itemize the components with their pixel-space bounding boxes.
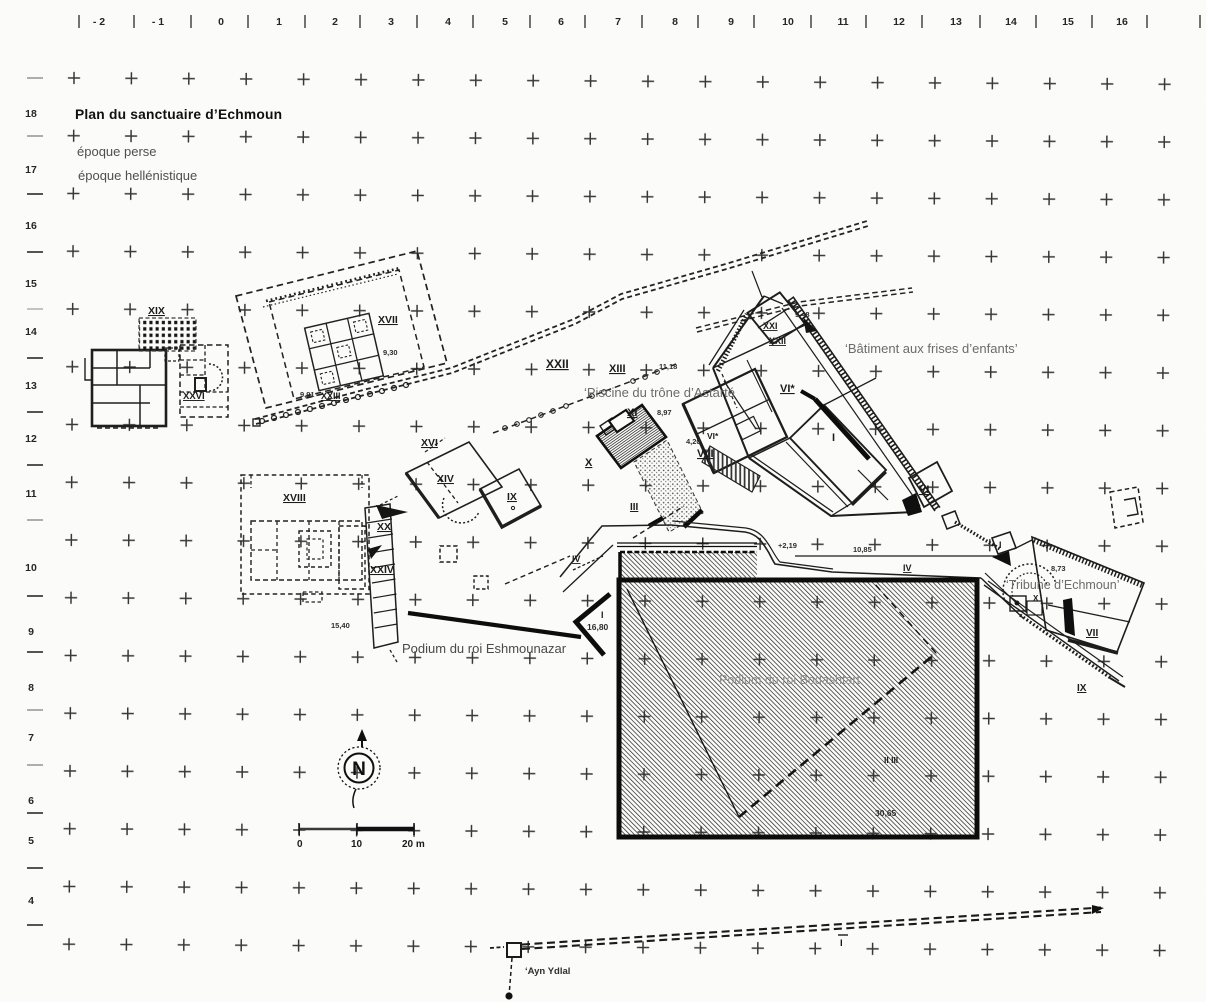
svg-text:15,40: 15,40 bbox=[331, 621, 350, 630]
svg-text:+2,19: +2,19 bbox=[778, 541, 797, 550]
svg-text:5: 5 bbox=[502, 16, 508, 28]
svg-text:Podium du roi Eshmounazar: Podium du roi Eshmounazar bbox=[402, 641, 567, 656]
svg-text:XXII: XXII bbox=[769, 336, 786, 346]
svg-text:16: 16 bbox=[1116, 16, 1128, 28]
svg-text:‘Bâtiment aux frises d’enfants: ‘Bâtiment aux frises d’enfants’ bbox=[845, 341, 1018, 356]
svg-text:VIII: VIII bbox=[697, 448, 714, 460]
svg-text:30,65: 30,65 bbox=[875, 808, 897, 818]
svg-text:XXII: XXII bbox=[546, 357, 569, 371]
svg-text:époque hellénistique: époque hellénistique bbox=[78, 168, 197, 183]
svg-text:XXVI: XXVI bbox=[183, 391, 205, 402]
svg-text:XVII: XVII bbox=[378, 314, 398, 326]
svg-text:13: 13 bbox=[950, 16, 962, 28]
svg-text:10: 10 bbox=[351, 839, 363, 850]
svg-text:17: 17 bbox=[25, 164, 37, 176]
svg-text:époque perse: époque perse bbox=[77, 144, 157, 159]
svg-text:8,97: 8,97 bbox=[657, 408, 672, 417]
svg-text:XXIV: XXIV bbox=[370, 564, 394, 576]
svg-text:18: 18 bbox=[25, 108, 37, 120]
svg-text:11,18: 11,18 bbox=[659, 362, 677, 371]
svg-text:‘Tribune d’Echmoun’: ‘Tribune d’Echmoun’ bbox=[1006, 578, 1119, 592]
svg-text:XX: XX bbox=[377, 521, 391, 533]
svg-text:11: 11 bbox=[837, 16, 848, 28]
svg-text:14: 14 bbox=[1005, 16, 1017, 28]
svg-text:VII: VII bbox=[1086, 628, 1098, 639]
svg-text:9,30: 9,30 bbox=[383, 348, 398, 357]
svg-text:6: 6 bbox=[28, 795, 34, 807]
svg-text:Plan du sanctuaire d’Echmoun: Plan du sanctuaire d’Echmoun bbox=[75, 107, 282, 122]
svg-text:XVIII: XVIII bbox=[283, 492, 306, 504]
svg-text:VI: VI bbox=[919, 484, 929, 496]
svg-text:8: 8 bbox=[672, 16, 678, 28]
svg-text:15: 15 bbox=[25, 278, 37, 290]
svg-text:IX: IX bbox=[1077, 683, 1087, 694]
svg-text:4: 4 bbox=[28, 895, 34, 907]
svg-text:XIV: XIV bbox=[437, 473, 454, 485]
svg-text:‘Piscine du trône d’Astarté: ‘Piscine du trône d’Astarté bbox=[584, 385, 735, 400]
svg-text:6: 6 bbox=[558, 16, 564, 28]
svg-text:I: I bbox=[999, 540, 1002, 550]
svg-text:4,20: 4,20 bbox=[686, 437, 701, 446]
svg-text:12: 12 bbox=[893, 16, 905, 28]
svg-text:I: I bbox=[840, 938, 843, 949]
svg-text:I: I bbox=[601, 610, 604, 620]
svg-text:20 m: 20 m bbox=[402, 839, 425, 850]
svg-text:VI*: VI* bbox=[780, 383, 795, 395]
svg-text:8: 8 bbox=[28, 682, 34, 694]
svg-text:VI*: VI* bbox=[707, 431, 719, 441]
svg-text:IX: IX bbox=[507, 491, 517, 503]
svg-text:7: 7 bbox=[615, 16, 621, 28]
svg-text:15: 15 bbox=[1062, 16, 1074, 28]
svg-text:9: 9 bbox=[728, 16, 734, 28]
svg-text:XXIII: XXIII bbox=[321, 391, 341, 401]
svg-text:16: 16 bbox=[25, 220, 37, 232]
svg-text:I: I bbox=[832, 432, 835, 444]
svg-text:- 2: - 2 bbox=[93, 16, 105, 28]
svg-text:16,80: 16,80 bbox=[587, 622, 609, 632]
svg-text:Podium du roi Bodashtart: Podium du roi Bodashtart bbox=[719, 673, 861, 687]
svg-text:9,48: 9,48 bbox=[795, 310, 810, 319]
svg-text:9: 9 bbox=[28, 626, 34, 638]
svg-text:0: 0 bbox=[297, 839, 303, 850]
svg-text:XXI: XXI bbox=[763, 321, 778, 331]
svg-text:12: 12 bbox=[25, 433, 37, 445]
svg-text:- 1: - 1 bbox=[152, 16, 164, 28]
svg-text:10: 10 bbox=[25, 562, 37, 574]
svg-text:II III: II III bbox=[884, 755, 898, 765]
svg-text:0: 0 bbox=[218, 16, 224, 28]
svg-text:XVI: XVI bbox=[421, 437, 438, 449]
svg-text:11: 11 bbox=[25, 488, 36, 500]
svg-text:8,73: 8,73 bbox=[1051, 564, 1066, 573]
svg-text:9,91: 9,91 bbox=[300, 390, 315, 399]
svg-text:14: 14 bbox=[25, 326, 37, 338]
svg-text:IV: IV bbox=[572, 554, 581, 564]
svg-text:X: X bbox=[585, 457, 593, 469]
svg-text:13: 13 bbox=[25, 380, 37, 392]
svg-text:IV: IV bbox=[903, 563, 912, 573]
svg-text:III: III bbox=[630, 502, 639, 513]
svg-text:4: 4 bbox=[445, 16, 451, 28]
svg-text:3: 3 bbox=[388, 16, 394, 28]
svg-text:N: N bbox=[352, 759, 366, 780]
svg-text:XIX: XIX bbox=[148, 305, 165, 317]
svg-text:XIII: XIII bbox=[609, 363, 626, 375]
svg-text:7: 7 bbox=[28, 732, 34, 744]
svg-text:XI: XI bbox=[627, 407, 637, 419]
svg-text:10: 10 bbox=[782, 16, 794, 28]
svg-text:X: X bbox=[1033, 594, 1039, 603]
svg-text:1: 1 bbox=[276, 16, 282, 28]
svg-text:‘Ayn Ydlal: ‘Ayn Ydlal bbox=[525, 966, 570, 977]
svg-text:2: 2 bbox=[332, 16, 338, 28]
svg-text:10,85: 10,85 bbox=[853, 545, 872, 554]
svg-text:5: 5 bbox=[28, 835, 34, 847]
